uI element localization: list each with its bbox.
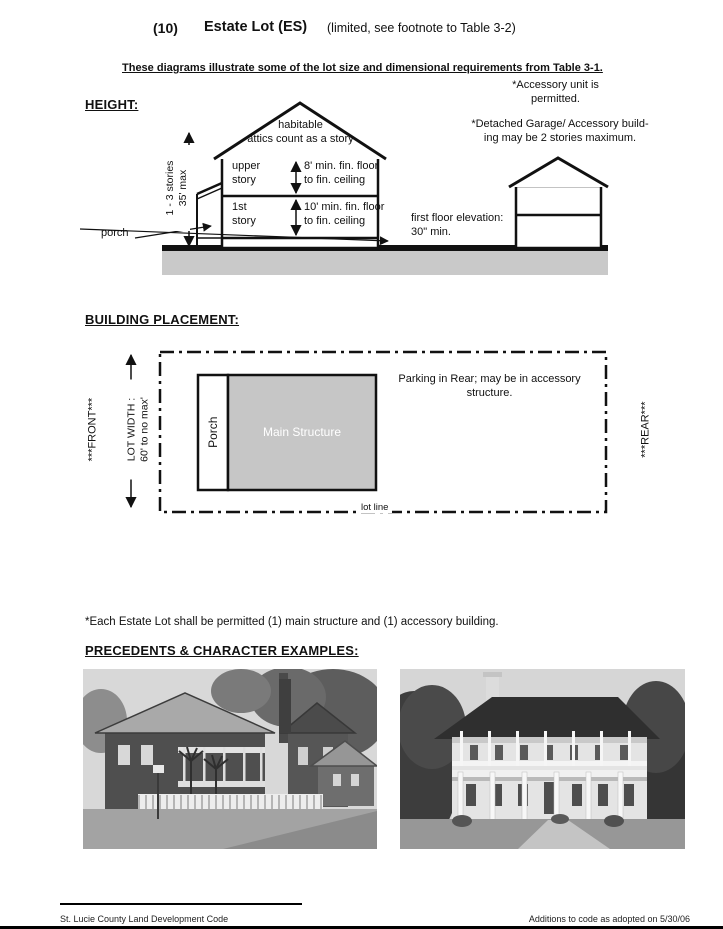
garage-body — [516, 186, 601, 248]
picket-fence — [138, 794, 323, 810]
lot-width-label: LOT WIDTH : 60' to no max' — [126, 380, 153, 480]
rear-label: ***REAR*** — [639, 385, 652, 475]
section-number: (10) — [153, 20, 178, 36]
ground-strip — [162, 251, 608, 275]
upper-railing — [452, 761, 647, 766]
lot-line-label: lot line — [357, 502, 392, 513]
document-page: (10) Estate Lot (ES) (limited, see footn… — [0, 0, 723, 929]
intro-sentence: These diagrams illustrate some of the lo… — [122, 62, 603, 74]
page-title: Estate Lot (ES) — [204, 19, 307, 35]
upper-story-height-label: 8' min. fin. floor to fin. ceiling — [304, 160, 378, 188]
footer-right: Additions to code as adopted on 5/30/06 — [529, 914, 690, 924]
footer-left: St. Lucie County Land Development Code — [60, 914, 228, 924]
footnote-separator — [60, 903, 302, 905]
garage-roof — [509, 158, 608, 187]
porch-roof — [197, 183, 222, 194]
estate-lot-footnote: *Each Estate Lot shall be permitted (1) … — [85, 616, 499, 628]
stories-max-label: 1 - 3 stories 35' max — [164, 145, 190, 231]
main-structure-label: Main Structure — [228, 425, 376, 439]
attic-label: habitable attics count as a story — [228, 119, 373, 147]
first-floor-elevation-label: first floor elevation: 30" min. — [411, 212, 503, 240]
precedent-photo-left — [83, 669, 377, 849]
lawn — [400, 814, 685, 849]
front-label: ***FRONT*** — [86, 385, 99, 475]
parking-note: Parking in Rear; may be in accessory str… — [387, 373, 592, 401]
porch-label: porch — [101, 227, 129, 241]
placement-heading: BUILDING PLACEMENT: — [85, 312, 239, 327]
title-note: (limited, see footnote to Table 3-2) — [327, 21, 516, 35]
porch-footprint-label: Porch — [206, 407, 220, 457]
first-story-label: 1st story — [232, 201, 256, 229]
precedents-heading: PRECEDENTS & CHARACTER EXAMPLES: — [85, 643, 359, 658]
first-story-height-label: 10' min. fin. floor to fin. ceiling — [304, 201, 384, 229]
precedent-photo-right — [400, 669, 685, 849]
upper-story-label: upper story — [232, 160, 260, 188]
